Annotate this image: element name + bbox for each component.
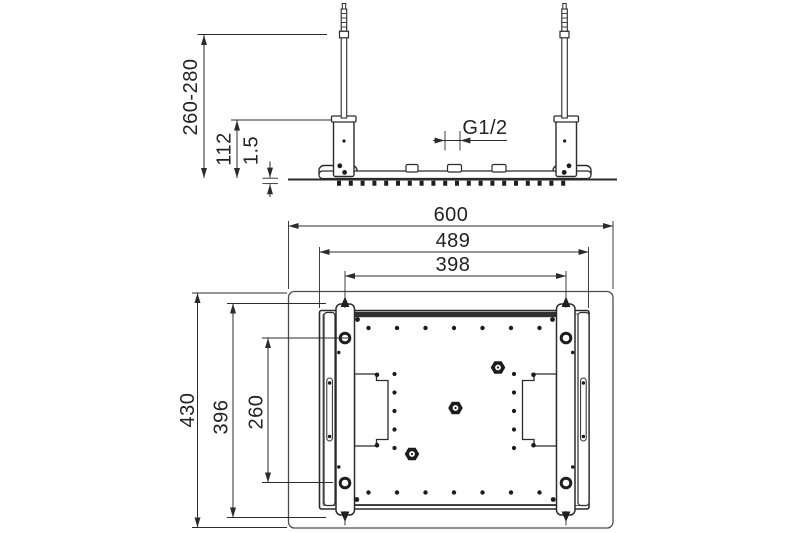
dim-overall-width-label: 600 xyxy=(434,204,469,226)
mount-hole xyxy=(340,478,350,488)
inlet-thread-label: G1/2 xyxy=(462,117,507,139)
left-hanger xyxy=(332,4,357,177)
dim-height-range-label: 260-280 xyxy=(180,59,202,136)
dim-bracket-height-label: 112 xyxy=(214,132,236,165)
technical-drawing: 260-280 112 1.5 G1/2 xyxy=(0,0,800,533)
dim-plate-thickness-label: 1.5 xyxy=(241,136,263,165)
dim-mount-spacing-width-label: 398 xyxy=(436,254,471,276)
dim-overall-depth-label: 430 xyxy=(177,393,199,428)
mount-hole xyxy=(561,478,571,488)
left-slide-strip xyxy=(324,313,335,506)
top-edge-band xyxy=(340,312,572,317)
dim-rail-length-label: 396 xyxy=(211,400,233,435)
right-hanger xyxy=(554,4,579,177)
right-mounting-rail xyxy=(557,297,576,526)
plan-view: 600 489 398 430 396 xyxy=(177,204,613,528)
drawing-canvas: 260-280 112 1.5 G1/2 xyxy=(0,0,800,533)
right-slide-strip xyxy=(578,313,589,506)
left-mounting-rail xyxy=(336,297,355,526)
dim-plate-width-label: 489 xyxy=(436,230,471,252)
dim-mount-spacing-depth-label: 260 xyxy=(246,395,268,430)
right-clamp-bracket xyxy=(523,373,557,448)
dim-inlet-thread: G1/2 xyxy=(433,117,508,151)
dim-plate-thickness: 1.5 xyxy=(241,136,279,197)
left-clamp-bracket xyxy=(355,373,389,448)
mount-hole xyxy=(561,333,571,343)
dim-bracket-height: 112 xyxy=(214,120,332,178)
side-view: 260-280 112 1.5 G1/2 xyxy=(180,4,617,198)
